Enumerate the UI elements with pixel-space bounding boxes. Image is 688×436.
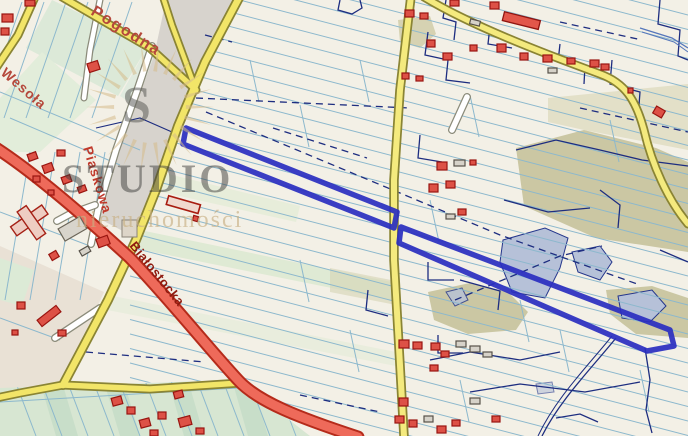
building-house [543,55,552,62]
building-house [450,0,459,6]
building-house [42,163,54,174]
building-house [497,44,506,52]
building-outbuilding [456,341,466,347]
sun-ray [184,115,212,125]
building-house [399,340,409,348]
building-house [628,88,633,93]
building-house [431,343,440,350]
building-house [427,40,435,47]
building-outbuilding [424,416,433,422]
building-outbuilding [470,346,480,352]
building-house [158,412,166,419]
building-house [409,420,417,427]
building-outbuilding [454,160,465,166]
watermark-title: STUDIO [62,156,233,201]
building-house [458,209,466,215]
building-house [12,330,18,335]
building-house [111,396,123,406]
building-house [416,76,423,81]
building-house [395,416,404,423]
building-house [470,45,477,51]
building-house [399,398,408,406]
building-house [520,53,528,60]
building-house [567,58,575,64]
cadastral-map-viewport[interactable]: Pogodna Wesoła Piaskowa Białostocka S ST… [0,0,688,436]
building-house [33,176,40,182]
building-house [490,2,499,9]
sun-ray [86,105,114,109]
building-house [27,152,38,162]
building-house [420,13,428,19]
building-house [49,250,59,260]
building-house [446,181,455,188]
building-house [430,365,438,371]
building-house [139,418,151,428]
building-house [601,64,609,70]
building-house [1,28,9,35]
building-outbuilding [548,68,557,73]
watermark-subtitle: nieruchomości [76,207,243,233]
building-outbuilding [446,214,455,219]
building-house [58,330,66,336]
watermark-symbol: S [122,77,151,134]
building-house [429,184,438,192]
building-house [452,420,460,426]
building-outbuilding [483,352,492,357]
building-house [2,14,13,22]
building-house [127,407,135,414]
building-house [25,0,35,6]
building-house [437,426,446,433]
building-house [173,390,184,399]
building-house [402,73,409,79]
building-house [590,60,599,67]
building-house [405,10,414,17]
building-outbuilding [470,398,480,404]
building-house [150,430,158,436]
building-house [17,302,25,309]
building-house [470,160,476,165]
map-canvas: Pogodna Wesoła Piaskowa Białostocka S ST… [0,0,688,436]
building-house [48,190,54,195]
building-house [437,162,447,170]
building-house [443,53,452,60]
building-outbuilding [79,246,91,256]
building-house [441,351,449,357]
building-house [492,416,500,422]
building-house [413,342,422,349]
building-house [196,428,204,434]
